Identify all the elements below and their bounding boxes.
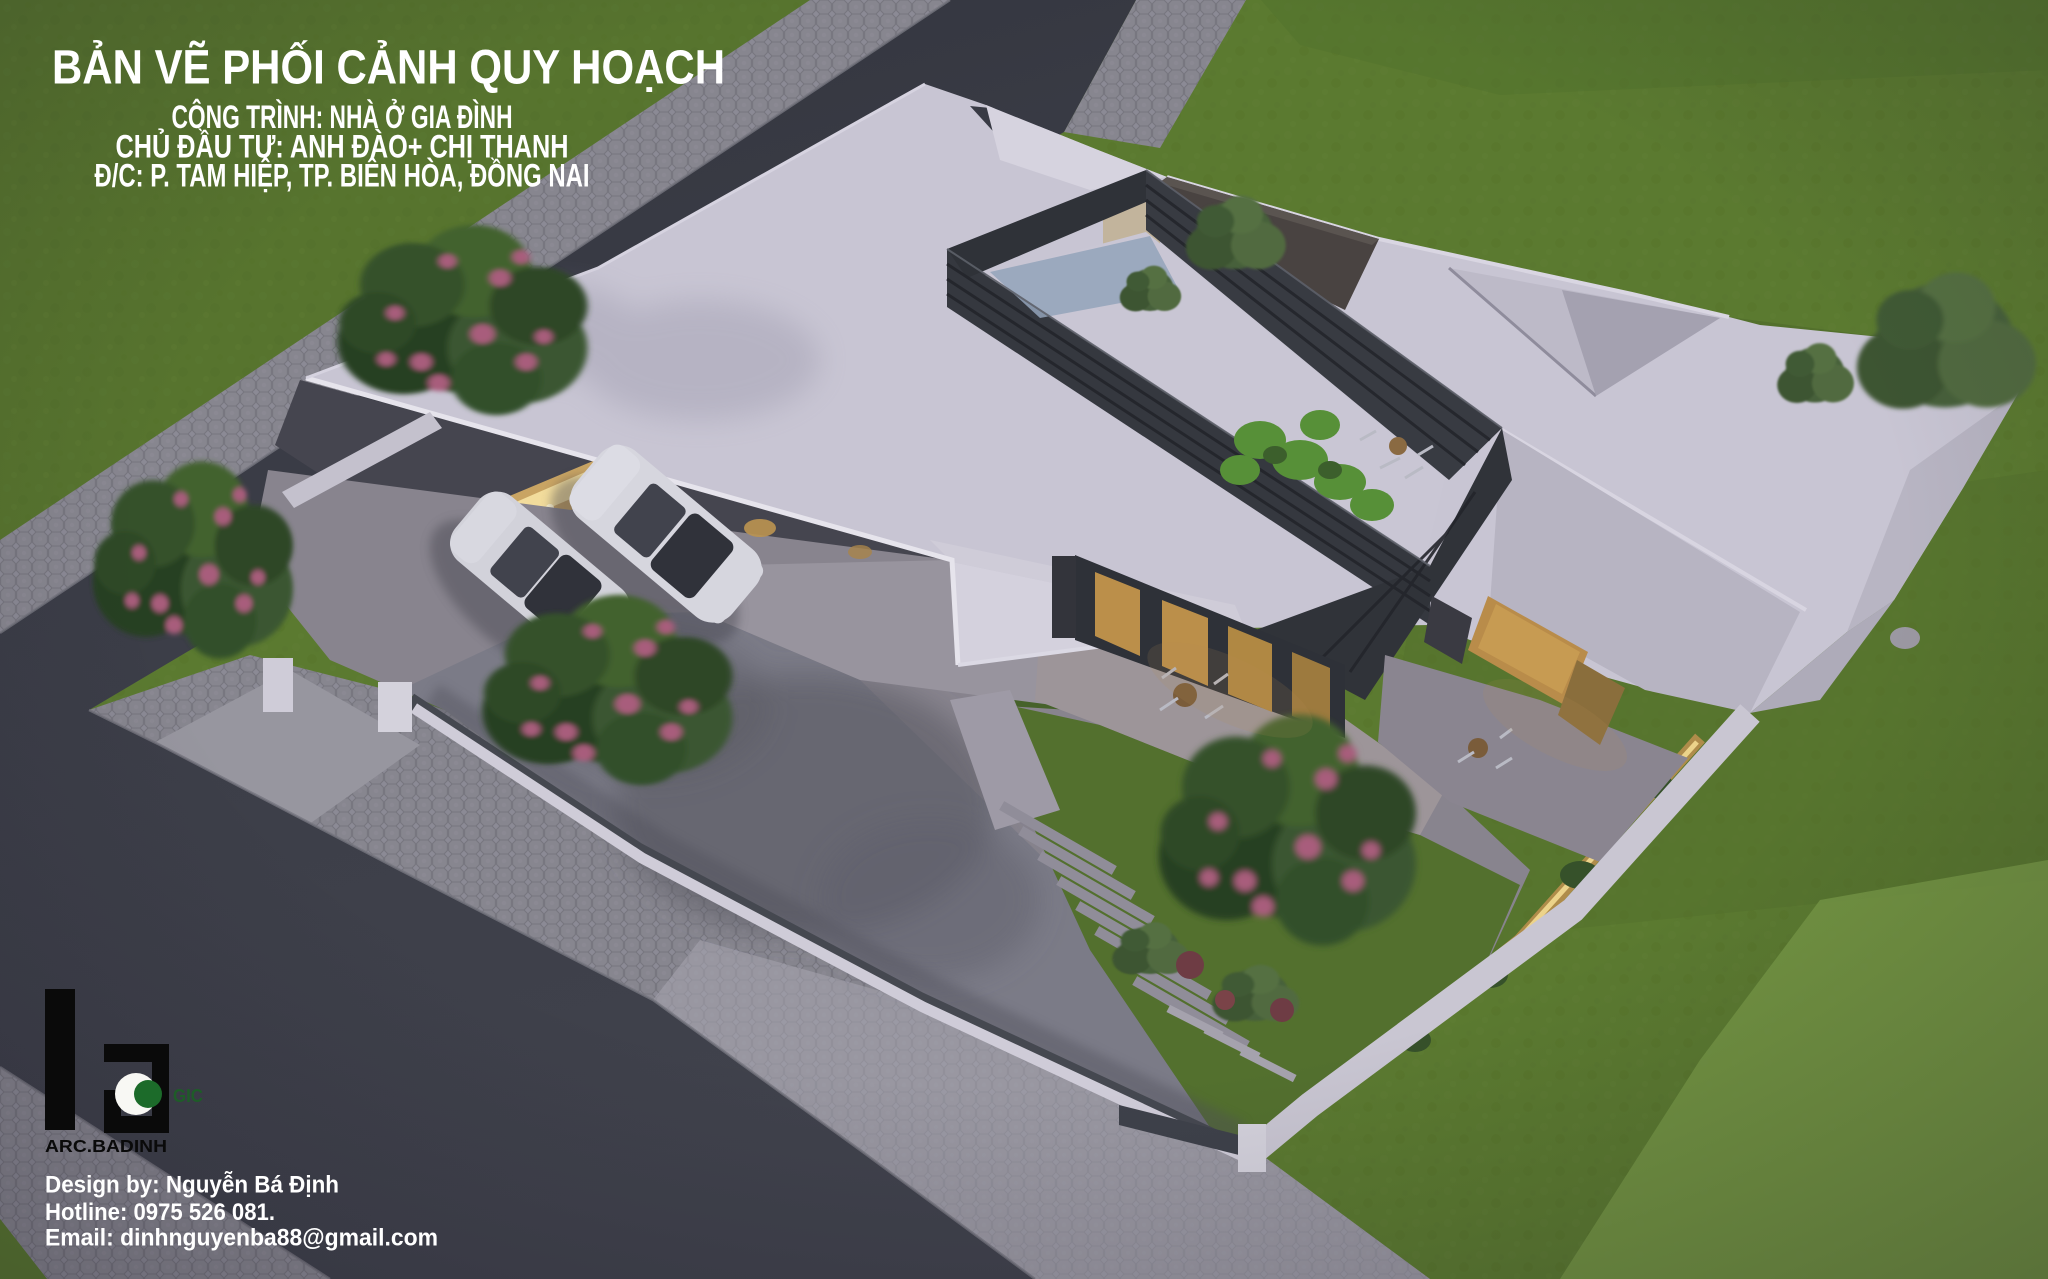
svg-text:GIC: GIC: [173, 1086, 203, 1106]
svg-text:Design by: Nguyễn Bá Định: Design by: Nguyễn Bá Định: [45, 1171, 339, 1199]
svg-text:Đ/C: P. TAM HIỆP, TP. BIÊN HÒA: Đ/C: P. TAM HIỆP, TP. BIÊN HÒA, ĐỒNG NAI: [95, 158, 590, 194]
svg-text:ARC.BADINH: ARC.BADINH: [45, 1136, 167, 1156]
svg-text:Hotline: 0975 526 081.: Hotline: 0975 526 081.: [45, 1199, 275, 1226]
svg-text:Email: dinhnguyenba88@gmail.co: Email: dinhnguyenba88@gmail.com: [45, 1225, 438, 1252]
svg-text:BẢN VẼ PHỐI CẢNH QUY HOẠCH: BẢN VẼ PHỐI CẢNH QUY HOẠCH: [52, 40, 725, 95]
